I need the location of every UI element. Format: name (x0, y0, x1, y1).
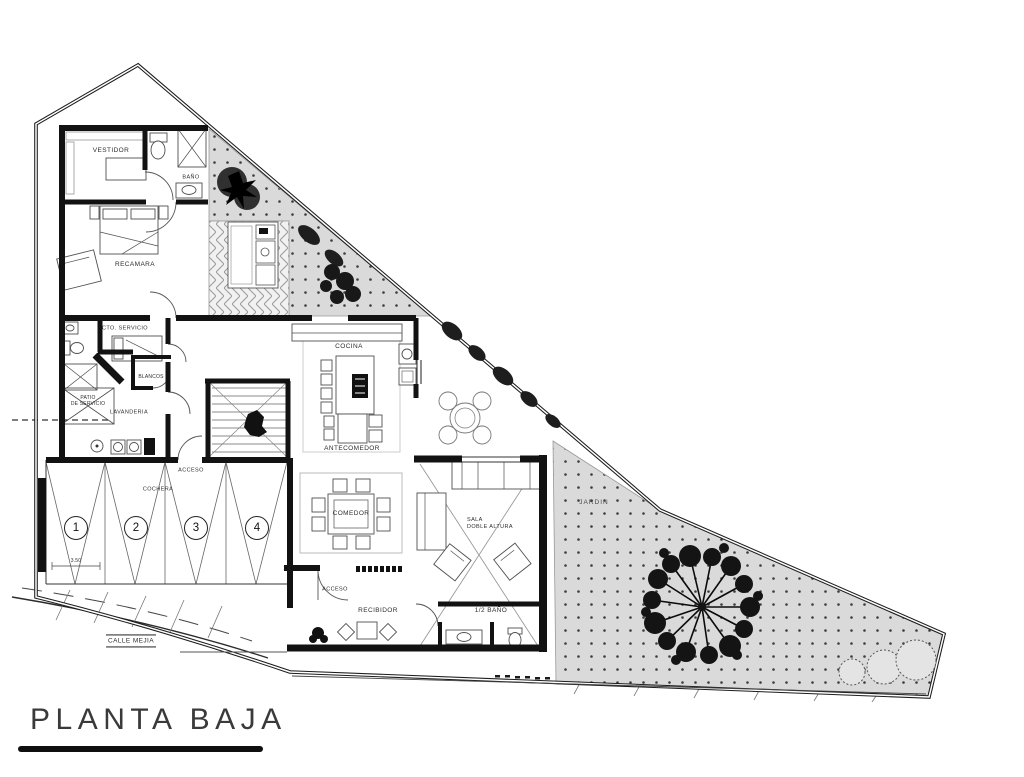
label-sala: SALADOBLE ALTURA (467, 517, 513, 531)
title-underline (18, 746, 263, 752)
label-patio-line1: PATIO (80, 395, 95, 401)
label-blancos: BLANCOS (138, 374, 163, 380)
label-acceso-entrada: ACCESO (322, 587, 348, 594)
label-bano: BAÑO (182, 175, 199, 182)
parking-spot-2: 2 (124, 516, 148, 540)
label-sala-line1: SALA (467, 517, 483, 523)
label-recibidor: RECIBIDOR (358, 607, 398, 615)
label-recamara: RECAMARA (115, 261, 155, 269)
outdoor-kitchen (228, 222, 278, 288)
parking-spot-3: 3 (184, 516, 208, 540)
parking-spot-1: 1 (64, 516, 88, 540)
label-cochera: COCHERA (143, 487, 173, 494)
staircase (210, 383, 286, 456)
plan-title: PLANTA BAJA (30, 703, 287, 737)
label-antecomedor: ANTECOMEDOR (324, 445, 380, 453)
street-name: CALLE MEJIA (106, 634, 156, 647)
label-calle: CALLE MEJIA (106, 634, 156, 647)
garden-areas (209, 129, 944, 696)
label-patio-line2: DE SERVICIO (71, 401, 105, 407)
label-comedor: COMEDOR (333, 510, 370, 518)
label-lavanderia: LAVANDERIA (110, 410, 148, 417)
label-dimension: 3.50 (71, 558, 82, 564)
label-sala-line2: DOBLE ALTURA (467, 524, 513, 530)
floorplan-drawing (0, 0, 1024, 777)
label-jardin: JARDIN (579, 499, 608, 507)
label-cto-servicio: CTO. SERVICIO (102, 326, 148, 333)
label-patio-servicio: PATIODE SERVICIO (71, 395, 105, 408)
entry-grate (356, 566, 402, 572)
label-medio-bano: 1/2 BAÑO (475, 607, 507, 615)
label-cocina: COCINA (335, 343, 363, 351)
label-vestidor: VESTIDOR (93, 147, 129, 155)
floorplan-canvas: VESTIDOR BAÑO RECAMARA CTO. SERVICIO BLA… (0, 0, 1024, 777)
parking-spot-4: 4 (245, 516, 269, 540)
label-acceso-cochera: ACCESO (178, 468, 204, 475)
